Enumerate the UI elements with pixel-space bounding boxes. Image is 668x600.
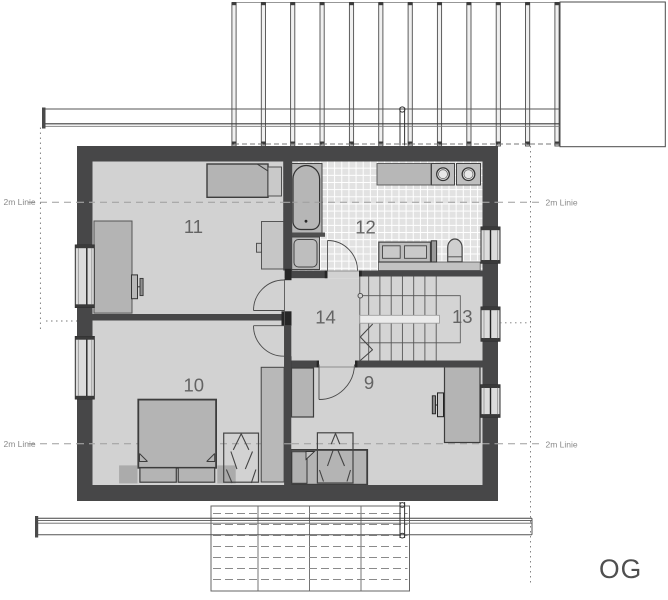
svg-text:10: 10	[184, 375, 205, 396]
svg-text:13: 13	[452, 306, 473, 327]
svg-text:9: 9	[364, 372, 374, 393]
svg-text:2m Linie: 2m Linie	[4, 439, 36, 449]
svg-text:2m Linie: 2m Linie	[4, 197, 36, 207]
svg-text:11: 11	[184, 216, 203, 237]
svg-text:2m Linie: 2m Linie	[546, 440, 578, 450]
svg-text:12: 12	[355, 217, 376, 238]
svg-text:14: 14	[315, 307, 336, 328]
svg-text:OG: OG	[599, 554, 642, 584]
svg-text:2m Linie: 2m Linie	[546, 197, 578, 207]
